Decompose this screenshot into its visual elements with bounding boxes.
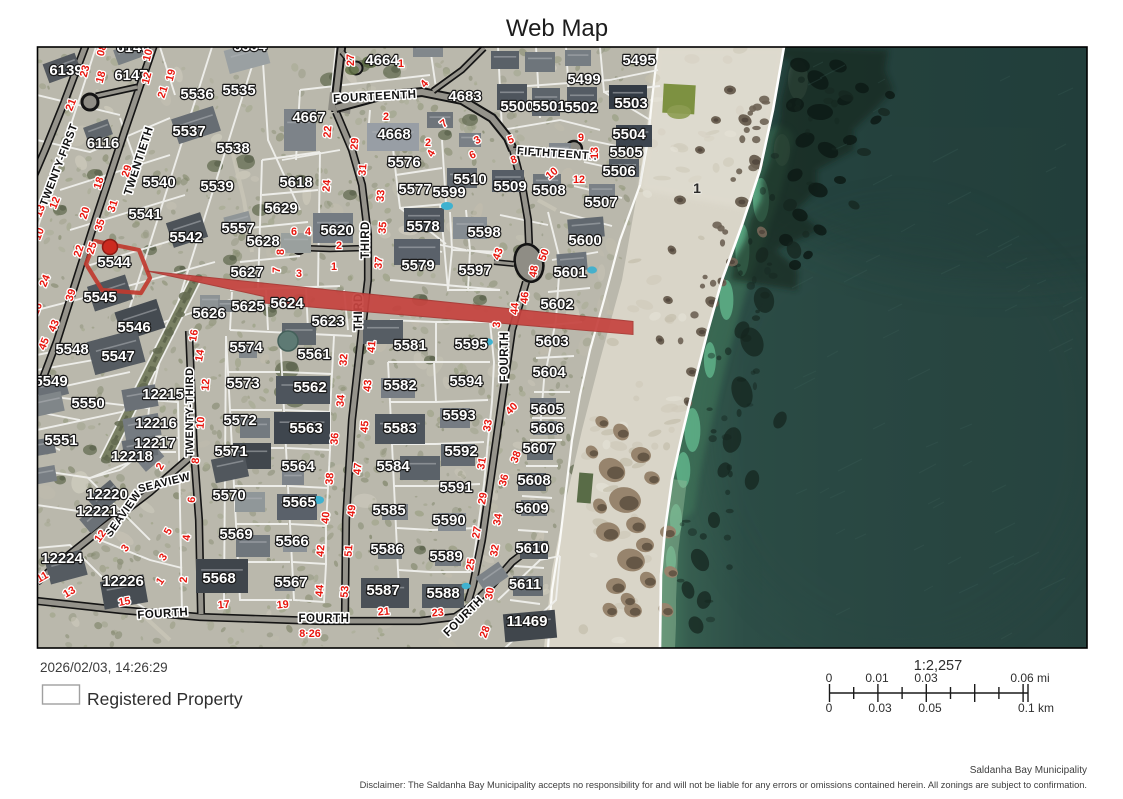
svg-text:1: 1 xyxy=(693,180,701,196)
svg-text:41: 41 xyxy=(366,340,379,353)
svg-text:16: 16 xyxy=(187,329,201,343)
svg-text:15: 15 xyxy=(118,595,132,609)
svg-text:0.1 km: 0.1 km xyxy=(1018,701,1054,715)
svg-text:6116: 6116 xyxy=(87,135,120,152)
svg-text:37: 37 xyxy=(373,256,386,269)
svg-text:17: 17 xyxy=(217,599,230,612)
svg-text:5574: 5574 xyxy=(229,339,263,356)
svg-text:5590: 5590 xyxy=(432,512,465,529)
svg-text:5507: 5507 xyxy=(584,194,617,211)
svg-text:Saldanha Bay Municipality: Saldanha Bay Municipality xyxy=(970,765,1087,776)
svg-text:5549: 5549 xyxy=(34,373,67,390)
svg-text:27: 27 xyxy=(345,54,357,66)
svg-text:23: 23 xyxy=(431,607,444,620)
svg-text:33: 33 xyxy=(375,189,388,202)
svg-text:5628: 5628 xyxy=(246,233,279,250)
svg-text:5538: 5538 xyxy=(216,140,249,157)
svg-text:FOURTH: FOURTH xyxy=(499,332,511,383)
svg-text:0.01: 0.01 xyxy=(865,671,889,685)
svg-text:8: 8 xyxy=(190,457,202,464)
svg-text:0.03: 0.03 xyxy=(914,671,938,685)
svg-text:36: 36 xyxy=(329,432,342,445)
svg-text:5577: 5577 xyxy=(398,181,431,198)
svg-text:44: 44 xyxy=(314,584,327,597)
svg-text:27: 27 xyxy=(470,526,484,540)
svg-text:5495: 5495 xyxy=(622,52,655,69)
svg-text:5627: 5627 xyxy=(230,264,263,281)
svg-text:136: 136 xyxy=(0,142,23,159)
svg-text:2: 2 xyxy=(336,240,342,252)
svg-text:45: 45 xyxy=(359,420,372,433)
svg-text:4: 4 xyxy=(181,534,193,541)
svg-text:5509: 5509 xyxy=(493,178,526,195)
svg-text:33: 33 xyxy=(481,419,495,433)
svg-text:34: 34 xyxy=(335,394,348,407)
svg-text:12215: 12215 xyxy=(142,386,184,403)
svg-text:8: 8 xyxy=(275,249,287,255)
svg-text:5623: 5623 xyxy=(311,313,344,330)
svg-text:35: 35 xyxy=(377,221,390,234)
svg-text:47: 47 xyxy=(352,462,365,475)
svg-text:6: 6 xyxy=(291,226,297,238)
svg-text:5594: 5594 xyxy=(449,373,483,390)
svg-text:12: 12 xyxy=(573,174,585,186)
svg-text:7: 7 xyxy=(271,267,283,273)
svg-text:5503: 5503 xyxy=(614,95,647,112)
svg-text:5605: 5605 xyxy=(530,401,563,418)
svg-text:12224: 12224 xyxy=(41,550,83,567)
svg-text:42: 42 xyxy=(315,544,328,557)
svg-text:5608: 5608 xyxy=(517,472,550,489)
svg-text:5567: 5567 xyxy=(274,574,307,591)
svg-text:12: 12 xyxy=(200,378,213,391)
svg-text:5544: 5544 xyxy=(97,254,131,271)
svg-text:5563: 5563 xyxy=(289,420,322,437)
svg-text:9: 9 xyxy=(578,132,584,144)
svg-text:4683: 4683 xyxy=(448,88,481,105)
svg-text:22: 22 xyxy=(322,125,335,138)
svg-text:5592: 5592 xyxy=(444,443,477,460)
svg-text:5602: 5602 xyxy=(540,296,573,313)
svg-text:13: 13 xyxy=(589,147,601,159)
svg-text:2026/02/03, 14:26:29: 2026/02/03, 14:26:29 xyxy=(40,660,168,675)
svg-text:4: 4 xyxy=(305,226,311,238)
svg-text:2: 2 xyxy=(178,576,190,583)
svg-text:5588: 5588 xyxy=(426,585,459,602)
svg-text:4667: 4667 xyxy=(292,109,325,126)
svg-text:40: 40 xyxy=(320,511,333,524)
svg-text:5583: 5583 xyxy=(383,420,416,437)
svg-text:5562: 5562 xyxy=(293,379,326,396)
svg-text:12218: 12218 xyxy=(111,448,153,465)
svg-text:5606: 5606 xyxy=(530,420,563,437)
svg-text:5589: 5589 xyxy=(429,548,462,565)
svg-text:5547: 5547 xyxy=(101,348,134,365)
svg-text:5542: 5542 xyxy=(169,229,202,246)
svg-text:34: 34 xyxy=(491,513,505,527)
svg-text:12226: 12226 xyxy=(102,573,144,590)
svg-text:0.05: 0.05 xyxy=(918,701,942,715)
svg-text:8·26: 8·26 xyxy=(299,628,321,640)
svg-text:5600: 5600 xyxy=(568,232,601,249)
svg-text:5578: 5578 xyxy=(406,218,439,235)
svg-text:5620: 5620 xyxy=(320,222,353,239)
svg-text:0.03: 0.03 xyxy=(868,701,892,715)
svg-text:5546: 5546 xyxy=(117,319,150,336)
svg-text:14: 14 xyxy=(193,349,207,363)
svg-text:5570: 5570 xyxy=(212,487,245,504)
svg-text:44: 44 xyxy=(509,302,522,315)
svg-text:5584: 5584 xyxy=(376,458,410,475)
svg-text:TWENTY-THIRD: TWENTY-THIRD xyxy=(184,367,196,456)
svg-text:5541: 5541 xyxy=(128,206,161,223)
svg-text:5598: 5598 xyxy=(467,224,500,241)
svg-text:49: 49 xyxy=(346,504,359,517)
svg-text:5629: 5629 xyxy=(264,200,297,217)
svg-text:6: 6 xyxy=(186,496,198,503)
svg-text:10: 10 xyxy=(195,416,208,429)
svg-text:5624: 5624 xyxy=(270,295,304,312)
svg-text:31: 31 xyxy=(357,163,370,176)
svg-text:12221: 12221 xyxy=(76,503,118,520)
svg-text:5611: 5611 xyxy=(509,576,542,593)
svg-text:5501: 5501 xyxy=(532,98,565,115)
svg-text:6137: 6137 xyxy=(3,114,36,131)
svg-text:5604: 5604 xyxy=(532,364,566,381)
svg-text:21: 21 xyxy=(377,606,390,619)
svg-text:0: 0 xyxy=(826,701,833,715)
svg-text:5569: 5569 xyxy=(219,526,252,543)
svg-text:5607: 5607 xyxy=(522,440,555,457)
svg-text:3: 3 xyxy=(491,321,503,328)
svg-text:51: 51 xyxy=(343,544,356,557)
svg-text:11469: 11469 xyxy=(507,613,548,630)
svg-text:43: 43 xyxy=(362,379,375,392)
svg-text:38: 38 xyxy=(324,472,337,485)
svg-text:5572: 5572 xyxy=(223,412,256,429)
svg-text:Registered Property: Registered Property xyxy=(87,689,243,709)
svg-text:FOURTH: FOURTH xyxy=(299,613,350,625)
svg-text:5579: 5579 xyxy=(401,257,434,274)
svg-text:2: 2 xyxy=(383,111,389,123)
svg-text:5595: 5595 xyxy=(454,336,487,353)
svg-text:5540: 5540 xyxy=(142,174,175,191)
svg-text:5625: 5625 xyxy=(231,298,264,315)
svg-text:1: 1 xyxy=(331,261,337,273)
svg-text:5564: 5564 xyxy=(281,458,315,475)
svg-text:4664: 4664 xyxy=(365,52,399,69)
svg-text:19: 19 xyxy=(276,599,289,612)
svg-text:12216: 12216 xyxy=(135,415,177,432)
svg-text:5535: 5535 xyxy=(222,82,255,99)
svg-text:5536: 5536 xyxy=(180,86,213,103)
svg-text:4668: 4668 xyxy=(377,126,410,143)
svg-text:1: 1 xyxy=(398,58,404,70)
svg-text:5609: 5609 xyxy=(515,500,548,517)
svg-text:3: 3 xyxy=(296,268,302,280)
svg-text:5582: 5582 xyxy=(383,377,416,394)
svg-text:5618: 5618 xyxy=(279,174,312,191)
svg-text:5603: 5603 xyxy=(535,333,568,350)
svg-text:5504: 5504 xyxy=(612,126,646,143)
svg-text:5601: 5601 xyxy=(553,264,586,281)
svg-text:25: 25 xyxy=(464,558,478,572)
svg-text:48: 48 xyxy=(527,265,541,279)
svg-text:2: 2 xyxy=(425,137,431,149)
svg-text:5539: 5539 xyxy=(200,178,233,195)
svg-text:5593: 5593 xyxy=(442,407,475,424)
svg-text:29: 29 xyxy=(476,492,490,506)
svg-text:5561: 5561 xyxy=(297,346,330,363)
svg-text:5591: 5591 xyxy=(439,479,472,496)
svg-text:Web Map: Web Map xyxy=(506,15,608,42)
svg-text:5566: 5566 xyxy=(275,533,308,550)
svg-text:32: 32 xyxy=(338,353,351,366)
svg-text:5610: 5610 xyxy=(515,540,548,557)
svg-text:0.06 mi: 0.06 mi xyxy=(1010,671,1049,685)
svg-text:5597: 5597 xyxy=(458,262,491,279)
svg-text:5573: 5573 xyxy=(226,375,259,392)
svg-text:5545: 5545 xyxy=(83,289,116,306)
svg-text:32: 32 xyxy=(488,544,502,558)
svg-text:5586: 5586 xyxy=(370,541,403,558)
svg-text:30: 30 xyxy=(483,587,497,601)
svg-text:5505: 5505 xyxy=(609,144,642,161)
svg-text:5506: 5506 xyxy=(602,163,635,180)
svg-text:5508: 5508 xyxy=(532,182,565,199)
svg-text:5551: 5551 xyxy=(44,432,77,449)
svg-text:53: 53 xyxy=(339,585,352,598)
svg-text:5537: 5537 xyxy=(172,123,205,140)
svg-text:24: 24 xyxy=(321,179,334,192)
svg-text:5499: 5499 xyxy=(567,71,600,88)
svg-text:5500: 5500 xyxy=(500,98,533,115)
svg-text:THIRD: THIRD xyxy=(360,221,372,259)
svg-text:0: 0 xyxy=(826,671,833,685)
svg-text:5550: 5550 xyxy=(71,395,104,412)
svg-text:31: 31 xyxy=(475,457,489,471)
svg-text:29: 29 xyxy=(349,137,362,150)
svg-text:5548: 5548 xyxy=(55,341,88,358)
svg-text:12220: 12220 xyxy=(86,486,128,503)
svg-text:5587: 5587 xyxy=(366,582,399,599)
svg-text:5502: 5502 xyxy=(564,99,597,116)
svg-text:5571: 5571 xyxy=(214,443,247,460)
svg-text:46: 46 xyxy=(519,291,532,304)
svg-text:5576: 5576 xyxy=(387,154,420,171)
svg-text:Disclaimer: The Saldanha Bay M: Disclaimer: The Saldanha Bay Municipalit… xyxy=(360,780,1087,790)
svg-text:5581: 5581 xyxy=(393,337,426,354)
svg-text:5626: 5626 xyxy=(192,305,225,322)
svg-text:5585: 5585 xyxy=(372,502,405,519)
svg-text:5568: 5568 xyxy=(202,570,235,587)
svg-text:5565: 5565 xyxy=(282,494,315,511)
svg-text:5510: 5510 xyxy=(453,171,486,188)
